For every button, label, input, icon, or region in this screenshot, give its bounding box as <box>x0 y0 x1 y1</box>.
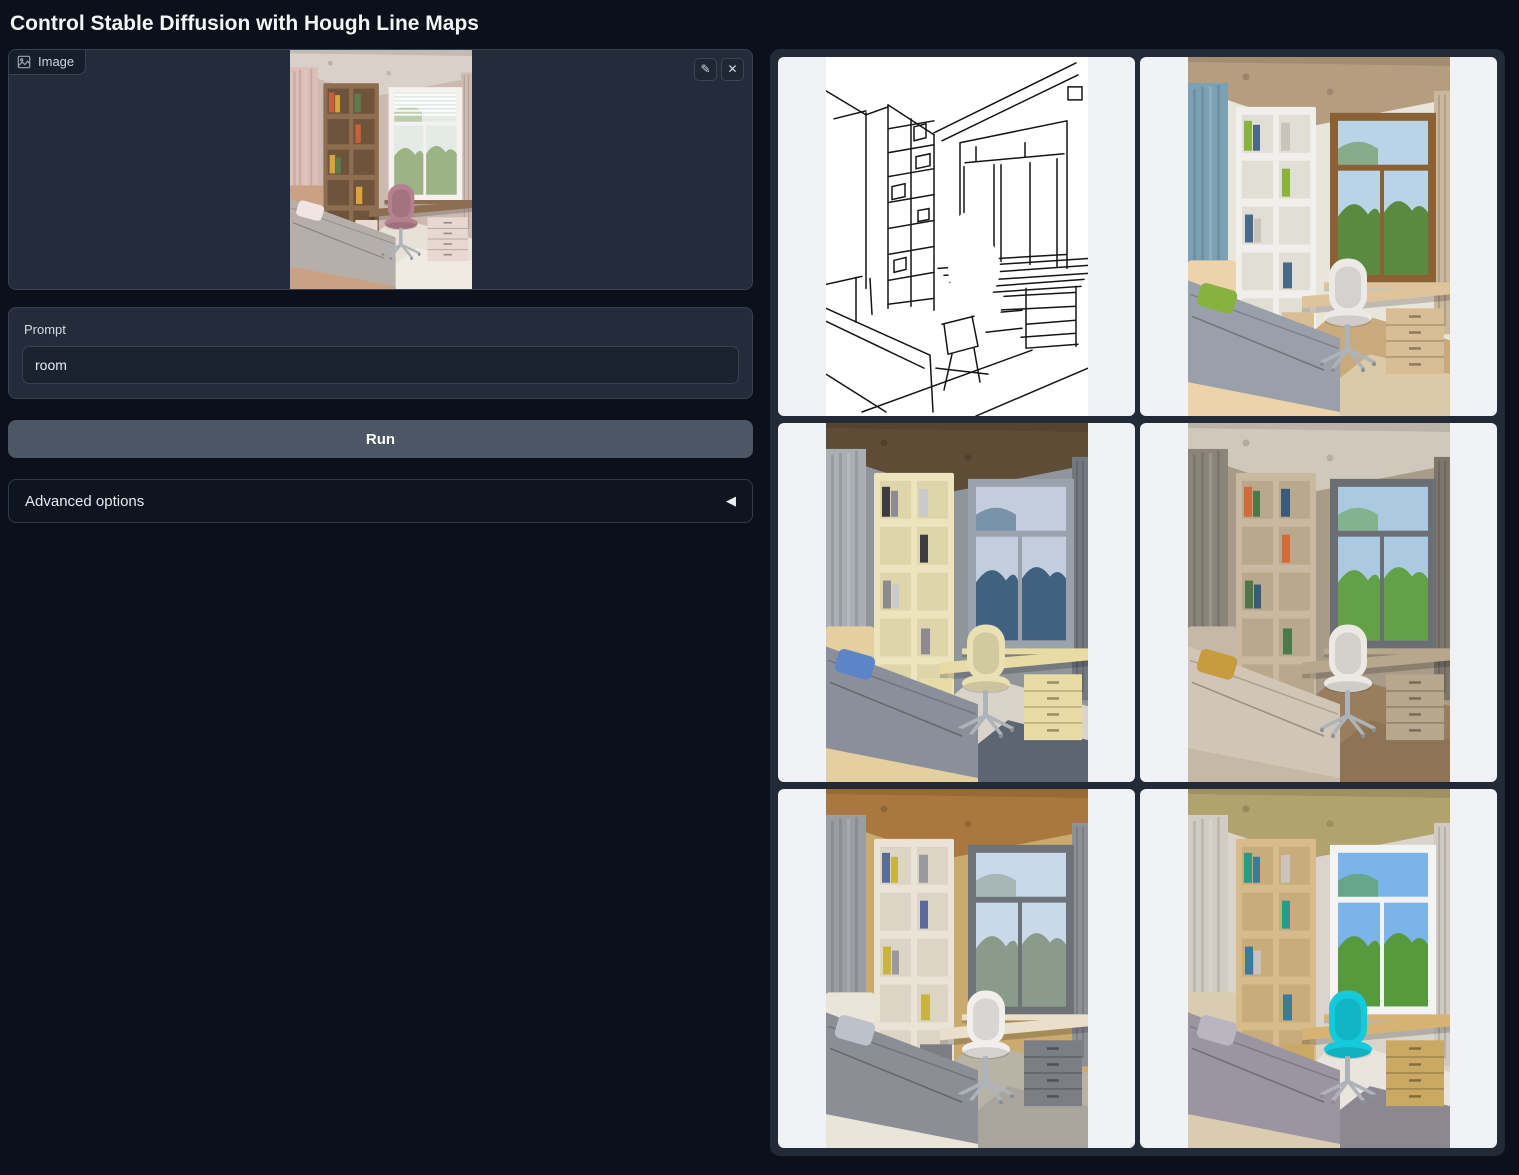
gallery-item-generated-room-1[interactable] <box>1140 57 1497 416</box>
room-scene-image <box>826 789 1088 1148</box>
room-scene-image <box>826 423 1088 782</box>
image-actions: ✎ ✕ <box>694 58 744 81</box>
run-button[interactable]: Run <box>8 420 753 458</box>
output-gallery <box>770 49 1505 1156</box>
room-scene-image <box>1188 57 1450 416</box>
advanced-options-label: Advanced options <box>25 493 144 510</box>
image-icon <box>17 55 31 69</box>
page-title: Control Stable Diffusion with Hough Line… <box>10 12 1505 36</box>
image-upload-widget: Image ✎ ✕ <box>8 49 753 290</box>
image-label-badge: Image <box>9 50 86 75</box>
main-layout: Image ✎ ✕ <box>8 49 1505 1156</box>
gallery-item-generated-room-4[interactable] <box>778 789 1135 1148</box>
room-scene-image <box>1188 423 1450 782</box>
prompt-input[interactable] <box>22 346 739 384</box>
gallery-item-generated-room-2[interactable] <box>778 423 1135 782</box>
edit-image-button[interactable]: ✎ <box>694 58 717 81</box>
image-label: Image <box>38 54 74 69</box>
gallery-item-generated-room-3[interactable] <box>1140 423 1497 782</box>
accordion-collapse-icon: ◀ <box>726 493 736 509</box>
gallery-item-generated-room-5[interactable] <box>1140 789 1497 1148</box>
prompt-widget: Prompt <box>8 307 753 399</box>
room-scene-image <box>290 50 472 289</box>
input-panel: Image ✎ ✕ <box>8 49 753 523</box>
room-scene-image <box>1188 789 1450 1148</box>
hough-line-map-image <box>826 57 1088 416</box>
uploaded-image[interactable] <box>290 50 472 289</box>
advanced-options-accordion[interactable]: Advanced options ◀ <box>8 479 753 523</box>
prompt-label: Prompt <box>24 322 739 337</box>
clear-image-button[interactable]: ✕ <box>721 58 744 81</box>
gallery-item-hough-line-map[interactable] <box>778 57 1135 416</box>
